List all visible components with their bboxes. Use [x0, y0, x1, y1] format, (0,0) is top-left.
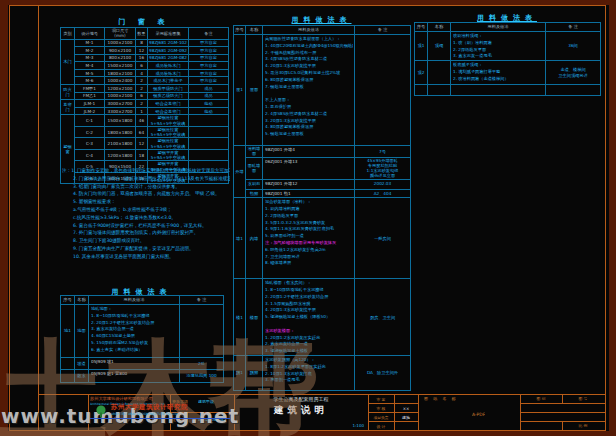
sign-label: 审 定 — [368, 397, 394, 402]
drawing-name-big: 建筑说明 — [236, 404, 366, 417]
table-row: 勒脚98ZJ001 勒1A2、404 — [234, 189, 411, 198]
table-row: JLM-23300×27001铝合金卷帘门电动 — [61, 107, 229, 115]
institute-name-cn: 苏州大学建筑设计研究院有限公司 — [90, 396, 169, 401]
table-row: 地1地面地砖地面：1. 8~10厚防滑地砖干水泥擦缝2. 20厚1:2干硬性水泥… — [61, 305, 224, 358]
note-line: a.气密性能不低于4级； b.水密性能不低于3级； — [62, 206, 230, 214]
table-header-row: 序号名称用料及做法备 注 — [234, 26, 411, 35]
door-window-table: 类别设计编号洞口尺寸(mm)数量采用标准图集备注木门M-11000×210089… — [60, 27, 229, 184]
binding-margin-line — [38, 5, 39, 430]
cert-value-1: 建筑甲级 — [198, 399, 214, 404]
door-window-table-title: 门 窗 表 — [60, 17, 228, 27]
table-row — [415, 85, 601, 96]
note-line: 9. 门窗五金配件由生产厂家配套提供，安装详见产品说明。 — [62, 245, 230, 253]
drawing-name-label: 图 纸 名 称 — [424, 396, 458, 401]
table-row: 散水05J909 散1 宽800沿建筑四周 100 — [61, 370, 224, 383]
sheet-number-label: 图 号 — [562, 396, 604, 401]
sheet-border-right — [609, 0, 616, 436]
table-row: 墙1内墙混合砂浆墙面（涂料）：1. 刷内墙涂料两遍2. 2厚纸筋灰罩面3. 5厚… — [234, 198, 411, 279]
material-table-left: 序号名称用料及做法备 注地1地面地砖地面：1. 8~10厚防滑地砖干水泥擦缝2.… — [60, 295, 224, 383]
table-row: 坡道05J909 坡12处 — [61, 358, 224, 370]
table-row: 外墙涂料墙面98ZJ001 外墙47号 — [234, 146, 411, 158]
project-name: 学生公寓及配套用房工程 — [236, 396, 366, 402]
cad-drawing-sheet: 门 窗 表 类别设计编号洞口尺寸(mm)数量采用标准图集备注木门M-11000×… — [0, 0, 616, 436]
table-row: M-51800×21004成品装饰木门甲方自定 — [61, 69, 229, 77]
table-row: 塑钢窗C-11500×180046塑钢推拉窗 5+9A+5中空玻璃 — [61, 115, 229, 127]
university-stamp-text: 苏州大学建筑设计研究院 — [111, 403, 188, 412]
apdf-watermark: A-PDF — [472, 412, 485, 417]
material-table-mid-title: 用料做法表 — [233, 15, 410, 25]
sign-label: 审 核 — [368, 406, 394, 411]
university-logo — [94, 403, 108, 422]
table-row: M-41500×21006成品装饰木门甲方自定 — [61, 62, 229, 70]
table-row: FM乙11000×21006钢质乙级防火门成品 — [61, 92, 229, 100]
table-row: C-32100×180012塑钢推拉窗 5+9A+5中空玻璃 — [61, 138, 229, 150]
table-header-row: 序号名称用料及做法备 注 — [415, 23, 601, 32]
stamp-underline — [90, 418, 230, 419]
sheet-type-label: 图 别 — [520, 396, 562, 401]
table-row: 顶2板底腻子顶棚：1. 满刮腻子两遍打磨平整2. 喷涂料两遍（走道楼梯间）走道、… — [415, 61, 601, 85]
note-line: 8. 卫生间门下留30缝隙或设百叶。 — [62, 237, 230, 245]
note-line: 5. 塑钢窗性能要求： — [62, 198, 230, 206]
table-row: 木门M-11000×2100898ZJ681 2GM-102甲方自定 — [61, 39, 229, 47]
note-line: c.抗风压性能≥3.5kPa； d.整窗传热系数K≤3.0。 — [62, 214, 230, 222]
tree-logo-icon — [94, 405, 108, 418]
table-row: 面砖墙面06ZJ001 外墙1345×95外墙面砖专用胶粘剂粘贴1:1水泥砂浆勾… — [234, 157, 411, 179]
table-row: C-41200×180018塑钢平开窗 5+9A+5中空玻璃 — [61, 149, 229, 161]
table-row: 顶1顶棚喷刷涂料顶棚：1. 喷（刷）涂料两遍2. 2厚纸筋灰罩面3. 素水泥浆一… — [415, 32, 601, 61]
table-header-row: 类别设计编号洞口尺寸(mm)数量采用标准图集备注 — [61, 28, 229, 40]
scale-label: 比 例 — [562, 423, 604, 428]
sign-label: 项目负责 — [368, 415, 394, 420]
table-row: 屋1屋面高聚物改性沥青防水卷材屋面（上人）：1. 40厚C20细石混凝土内配Φ4… — [234, 35, 411, 146]
note-line: 2. 门窗玻璃选用应符合《建筑玻璃应用技术规程》JGJ113及有关节能标准规定。 — [62, 175, 230, 183]
table-row: 卷帘门JLM-13000×27002铝合金卷帘门电动 — [61, 100, 229, 108]
table-row: C-21800×180064塑钢推拉窗 5+9A+5中空玻璃 — [61, 126, 229, 138]
sheet-border-bottom — [0, 431, 616, 436]
note-line: 10. 其余未尽事宜详见各层平面图及门窗大样图。 — [62, 253, 230, 261]
door-window-notes: 注：1. 门窗制作安装前，承包商须到现场实测洞口尺寸并与图纸核对无误后方可加工。… — [62, 167, 230, 261]
note-line: 6. 窗台低于900时设护窗栏杆，栏杆高度不低于900，详见大样。 — [62, 222, 230, 230]
table-row: 楼1楼面地砖楼面（有水房间）：1. 8~10厚防滑地砖干水泥擦缝2. 20厚1:… — [234, 279, 411, 356]
university-stamp-en: ARCHITECTURAL DESIGN INSTITUTE CO.,LTD. — [111, 412, 231, 416]
note-line: 3. 铝塑门窗均由厂家负责二次设计，分格仅供参考。 — [62, 183, 230, 191]
table-row: M-2900×21001298ZJ681 2GM-092甲方自定 — [61, 47, 229, 55]
table-row: 踢1踢脚水泥砂浆踢脚（高120）：1. 8厚1:2水泥砂浆罩面压实赶光2. 10… — [234, 356, 411, 391]
material-table-right: 序号名称用料及做法备 注顶1顶棚喷刷涂料顶棚：1. 喷（刷）涂料两遍2. 2厚纸… — [414, 22, 601, 96]
note-line: 注：1. 门窗制作安装前，承包商须到现场实测洞口尺寸并与图纸核对无误后方可加工。 — [62, 167, 230, 175]
sign-label: 设 计 — [368, 424, 394, 429]
scale-note: 1:100 — [300, 423, 364, 428]
table-row: M-3800×21001698ZJ681 2GM-082甲方自定 — [61, 54, 229, 62]
table-row: 水刷石98ZJ001 外墙122002.03 — [234, 179, 411, 189]
note-line: 7. 外门窗与墙体间缝隙用发泡剂填实，内外侧打密封胶封严。 — [62, 229, 230, 237]
table-header-row: 序号名称用料及做法备 注 — [61, 296, 224, 305]
material-table-mid: 序号名称用料及做法备 注屋1屋面高聚物改性沥青防水卷材屋面（上人）：1. 40厚… — [233, 25, 411, 391]
sign-value: 建施 — [394, 415, 418, 420]
sign-value: ×× — [394, 406, 418, 411]
sheet-border-left — [0, 0, 8, 436]
note-line: 4. 防火门均带闭门器，双扇者加顺序器，向疏散方向开启。 甲级 乙级。 — [62, 190, 230, 198]
table-row: M-61000×24002成品木门带亮子甲方自定 — [61, 77, 229, 85]
table-row: 防火门FM甲11200×21002钢质甲级防火门成品 — [61, 85, 229, 93]
